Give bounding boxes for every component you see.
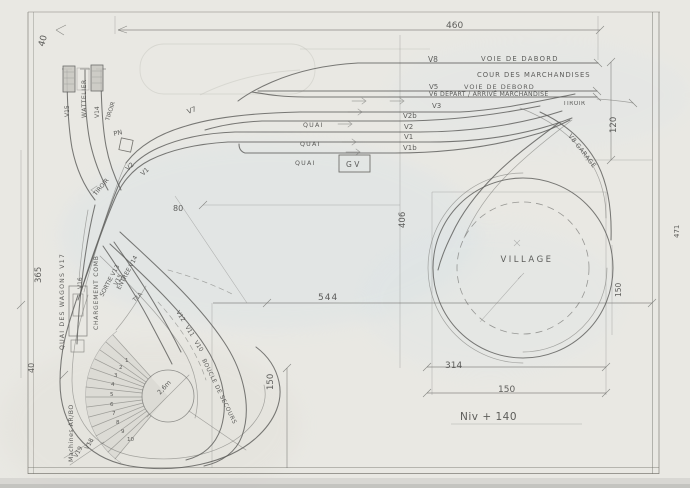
dim-top-width: 460 xyxy=(446,21,463,31)
label-quai-wagons: QUAI DES WAGONS V17 xyxy=(59,253,66,350)
dim-right-upper: 120 xyxy=(609,117,619,133)
turntable-track-number: 10 xyxy=(127,437,134,443)
label-v2: V2 xyxy=(404,123,413,131)
label-cour-des-marchandises: COUR DES MARCHANDISES xyxy=(477,71,591,79)
turntable-track-number: 3 xyxy=(114,373,118,379)
label-v2b: V2b xyxy=(403,112,417,120)
paper-edge-shadow xyxy=(0,484,690,488)
label-v14-siding: V14 xyxy=(94,106,101,118)
turntable-track-number: 7 xyxy=(112,411,116,417)
scanned-track-plan: 460 40 120 471 406 544 150 314 150 150 N… xyxy=(0,0,690,488)
dim-right-margin: 471 xyxy=(673,225,681,238)
label-v1: V1 xyxy=(404,133,413,141)
label-quai-2: QUAI xyxy=(300,141,321,148)
label-v6-depart: V6 DEPART / ARRIVÉ MARCHANDISE xyxy=(429,89,549,98)
dim-village-width: 314 xyxy=(445,361,462,371)
turntable-track-number: 8 xyxy=(116,420,120,426)
level-note: Niv + 140 xyxy=(460,411,517,423)
track-plan-drawing: 460 40 120 471 406 544 150 314 150 150 N… xyxy=(0,0,690,488)
dim-station-offset: 80 xyxy=(173,204,183,213)
label-quai-3: QUAI xyxy=(295,160,316,167)
label-quai-1: QUAI xyxy=(303,122,324,129)
turntable-track-number: 6 xyxy=(110,402,114,408)
dim-center-width: 544 xyxy=(318,293,338,303)
label-v1b: V1b xyxy=(403,144,417,152)
label-village: VILLAGE xyxy=(500,255,553,265)
turntable-track-number: 4 xyxy=(111,382,115,388)
label-v3: V3 xyxy=(432,102,441,110)
label-v15-siding: V15 xyxy=(64,105,71,117)
turntable-track-number: 9 xyxy=(121,429,125,435)
label-v16: V16 xyxy=(77,277,84,289)
turntable-track-number: 1 xyxy=(125,358,129,364)
label-v8: V8 xyxy=(428,55,438,64)
turntable-track-number: 2 xyxy=(119,365,123,371)
dim-left-lower-margin: 40 xyxy=(27,363,36,373)
label-voie-de-debord: VOIE DE DEBORD xyxy=(464,83,535,91)
turntable-track-number: 5 xyxy=(110,392,114,398)
dim-village-inner-width: 150 xyxy=(498,385,515,395)
label-v5: V5 xyxy=(429,83,438,91)
dim-left-height: 365 xyxy=(34,267,44,283)
dim-lower-left-height: 150 xyxy=(266,374,276,390)
label-tiroir-right: TIROIR xyxy=(562,101,586,107)
paper-tint xyxy=(360,225,620,375)
dim-village-right-height: 150 xyxy=(614,282,623,297)
label-voie-de-dabord: VOIE DE DABORD xyxy=(481,55,559,63)
dim-center-height: 406 xyxy=(398,212,408,228)
label-gv: G V xyxy=(346,160,360,169)
label-wattelier: WATTELIER xyxy=(81,79,88,118)
